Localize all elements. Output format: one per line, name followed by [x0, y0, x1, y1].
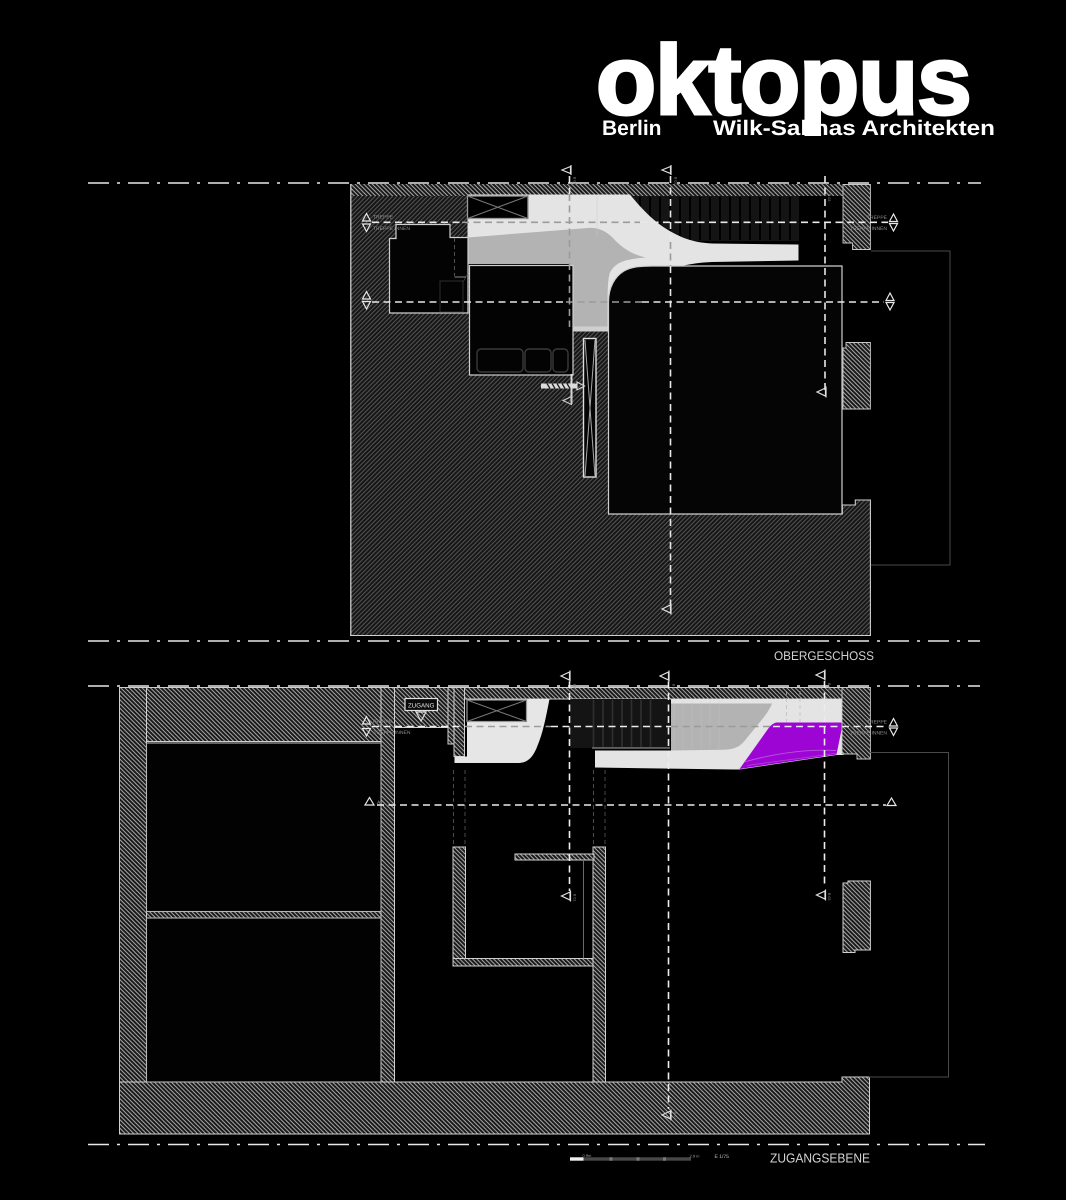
- svg-text:B 01: B 01: [573, 177, 577, 184]
- svg-text:TREPPE INNEN: TREPPE INNEN: [850, 731, 887, 737]
- svg-text:0.9m: 0.9m: [583, 1153, 593, 1158]
- svg-text:2.9 m: 2.9 m: [690, 1154, 701, 1159]
- svg-text:ZUGANG: ZUGANG: [408, 703, 435, 710]
- svg-text:B 01: B 01: [573, 684, 577, 691]
- svg-text:TREPPE INNEN: TREPPE INNEN: [374, 730, 411, 736]
- svg-text:B 03: B 03: [827, 194, 831, 201]
- svg-text:B 02: B 02: [674, 177, 678, 184]
- svg-text:TREPPE: TREPPE: [373, 215, 394, 221]
- svg-text:B 02: B 02: [673, 1112, 677, 1119]
- svg-text:TREPPE: TREPPE: [867, 215, 888, 221]
- svg-text:TREPPE INNEN: TREPPE INNEN: [373, 226, 410, 232]
- svg-text:B 01: B 01: [573, 894, 577, 901]
- svg-text:Berlin: Berlin: [602, 117, 662, 140]
- svg-text:B 03: B 03: [827, 893, 831, 900]
- svg-text:B 03: B 03: [827, 683, 831, 690]
- svg-text:B 02: B 02: [672, 684, 676, 691]
- svg-text:ZUGANGSEBENE: ZUGANGSEBENE: [770, 1151, 870, 1166]
- svg-text:TREPPE: TREPPE: [867, 720, 888, 726]
- svg-text:OBERGESCHOSS: OBERGESCHOSS: [774, 649, 874, 663]
- svg-text:E 1/75: E 1/75: [715, 1154, 730, 1160]
- svg-text:TREPPE INNEN: TREPPE INNEN: [850, 226, 887, 232]
- svg-text:Wilk-Salinas Architekten: Wilk-Salinas Architekten: [713, 117, 995, 140]
- svg-text:TREPPE: TREPPE: [372, 719, 393, 725]
